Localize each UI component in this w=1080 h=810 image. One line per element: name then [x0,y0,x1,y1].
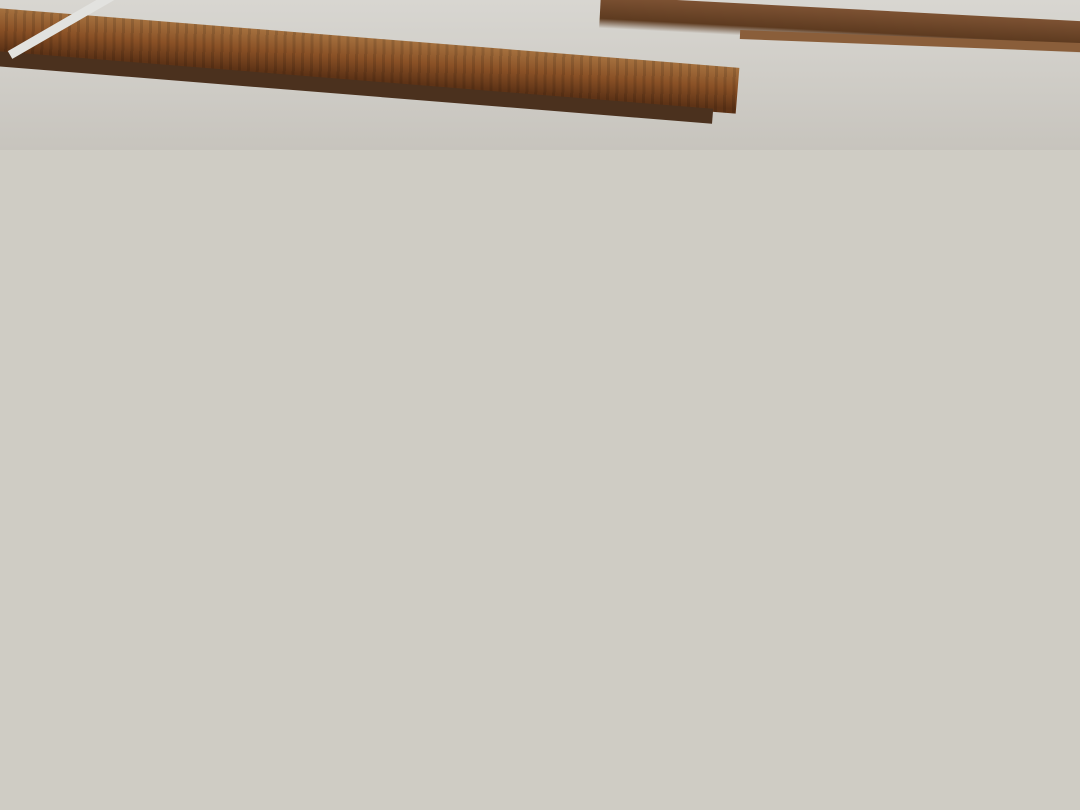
map-board: 中国校园服饰产业基地 锦东安置区公交首末站腾飞织造面积：15,250㎡宏达服饰面… [0,46,1080,810]
photo-of-map-board: 厅) 中国校园服饰产业基地 锦东安置区公交首末站腾飞织造面积：15,250㎡宏达… [0,0,1080,810]
map-content: 中国校园服饰产业基地 锦东安置区公交首末站腾飞织造面积：15,250㎡宏达服饰面… [0,46,1080,810]
